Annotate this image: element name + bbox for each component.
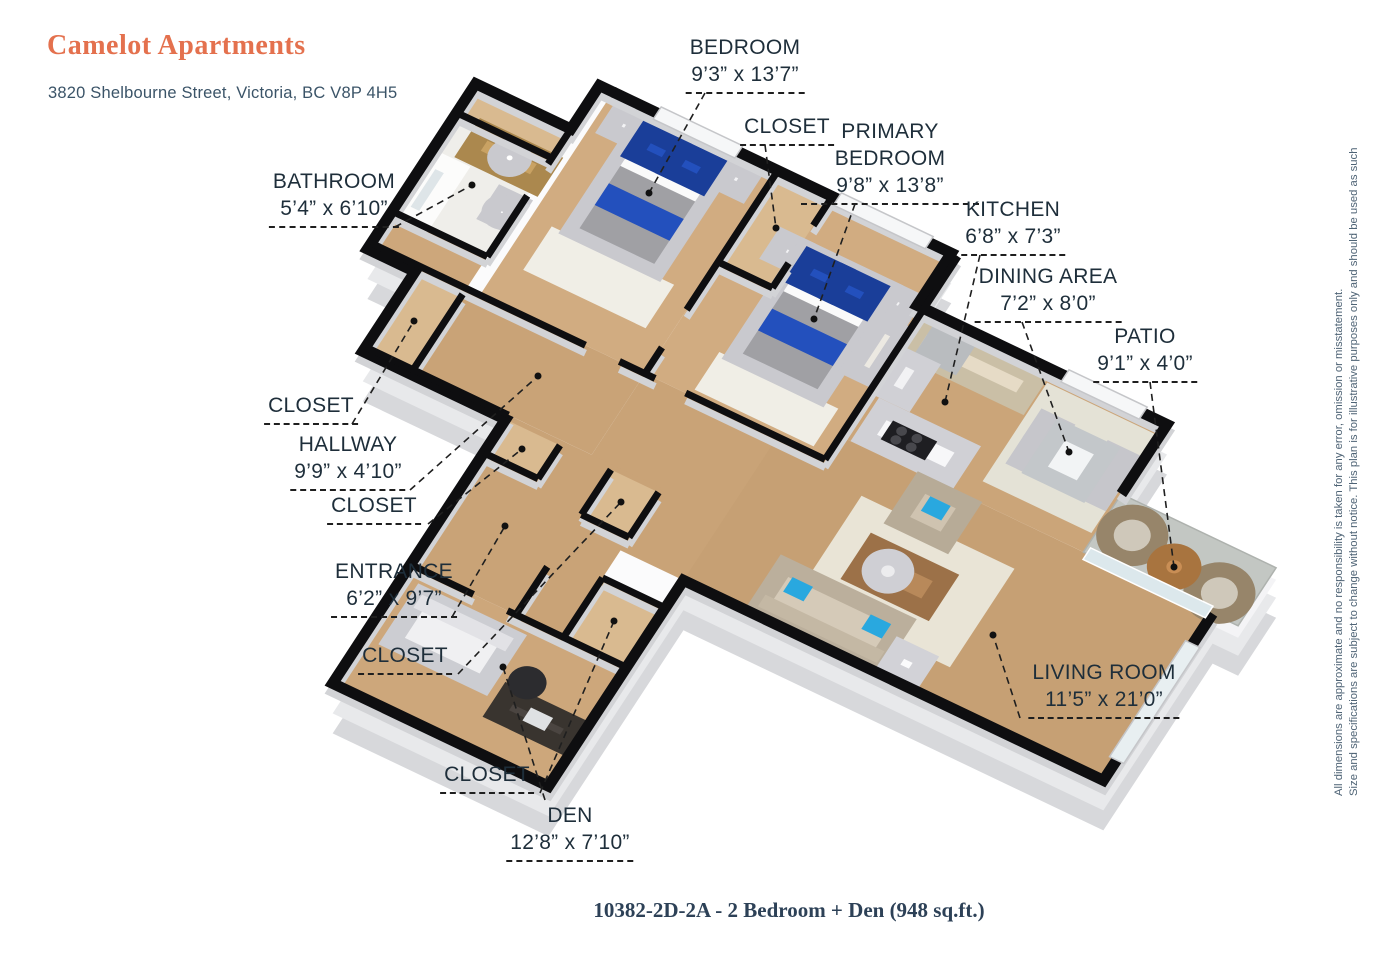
label-closet-entry: CLOSET (358, 642, 452, 675)
label-kitchen: KITCHEN 6’8” x 7’3” (961, 196, 1065, 256)
label-dining-area: DINING AREA 7’2” x 8’0” (975, 263, 1122, 323)
room-dims: 6’8” x 7’3” (965, 223, 1061, 250)
room-dims: 9’1” x 4’0” (1097, 350, 1193, 377)
plan-caption: 10382-2D-2A - 2 Bedroom + Den (948 sq.ft… (593, 898, 984, 923)
label-closet-den: CLOSET (440, 761, 534, 794)
floor-plan-page: Camelot Apartments 3820 Shelbourne Stree… (0, 0, 1383, 980)
room-name: PRIMARY BEDROOM (805, 118, 975, 172)
label-closet-hall: CLOSET (327, 492, 421, 525)
label-hallway: HALLWAY 9’9” x 4’10” (290, 431, 405, 491)
room-name: LIVING ROOM (1032, 659, 1175, 686)
label-bathroom: BATHROOM 5’4” x 6’10” (269, 168, 399, 228)
label-patio: PATIO 9’1” x 4’0” (1093, 323, 1197, 383)
room-name: DEN (510, 802, 629, 829)
room-name: CLOSET (444, 761, 530, 788)
room-name: KITCHEN (965, 196, 1061, 223)
room-name: CLOSET (331, 492, 417, 519)
room-dims: 9’8” x 13’8” (805, 172, 975, 199)
room-name: DINING AREA (979, 263, 1118, 290)
label-den: DEN 12’8” x 7’10” (506, 802, 633, 862)
room-name: ENTRANCE (335, 558, 453, 585)
room-dims: 7’2” x 8’0” (979, 290, 1118, 317)
floor-plan-drawing (0, 0, 1383, 980)
room-name: CLOSET (362, 642, 448, 669)
room-name: BATHROOM (273, 168, 395, 195)
room-name: BEDROOM (690, 34, 801, 61)
label-bedroom: BEDROOM 9’3” x 13’7” (686, 34, 805, 94)
room-name: PATIO (1097, 323, 1193, 350)
room-name: CLOSET (268, 392, 354, 419)
label-closet-left: CLOSET (264, 392, 358, 425)
room-dims: 9’3” x 13’7” (690, 61, 801, 88)
room-dims: 6’2” x 9’7” (335, 585, 453, 612)
disclaimer-line-1: All dimensions are approximate and no re… (1332, 132, 1347, 796)
label-primary-bedroom: PRIMARY BEDROOM 9’8” x 13’8” (801, 118, 979, 205)
room-dims: 5’4” x 6’10” (273, 195, 395, 222)
disclaimer-text: All dimensions are approximate and no re… (1332, 132, 1361, 796)
disclaimer-line-2: Size and specifications are subject to c… (1347, 132, 1362, 796)
label-living-room: LIVING ROOM 11’5” x 21’0” (1028, 659, 1179, 719)
room-dims: 12’8” x 7’10” (510, 829, 629, 856)
room-dims: 9’9” x 4’10” (294, 458, 401, 485)
label-entrance: ENTRANCE 6’2” x 9’7” (331, 558, 457, 618)
room-name: HALLWAY (294, 431, 401, 458)
room-dims: 11’5” x 21’0” (1032, 686, 1175, 713)
